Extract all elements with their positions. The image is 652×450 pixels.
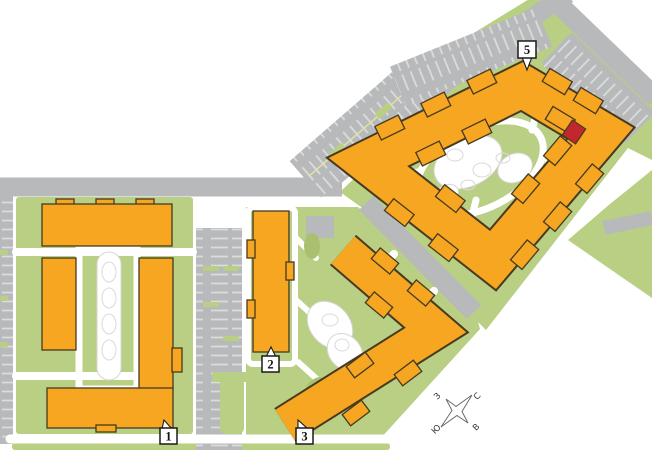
compass-south-label: Ю [430, 423, 444, 437]
compass-west-label: З [432, 391, 443, 402]
compass-star [441, 395, 472, 427]
marker-label-3: 3 [301, 430, 307, 444]
compass-north-label: С [472, 391, 483, 402]
courtyard-1-pool [97, 252, 121, 380]
marker-label-2: 2 [267, 358, 273, 372]
building-2[interactable] [247, 211, 294, 352]
road-east-stub [604, 218, 652, 228]
parking-median [220, 378, 244, 434]
site-map: 1 2 3 5 З С Ю В [0, 0, 652, 450]
site-map-canvas: 1 2 3 5 З С Ю В [0, 0, 652, 450]
marker-label-1: 1 [165, 430, 171, 444]
marker-label-5: 5 [524, 43, 530, 57]
compass-rose: З С Ю В [430, 391, 483, 436]
compass-east-label: В [471, 422, 482, 433]
parking-west [0, 196, 13, 444]
